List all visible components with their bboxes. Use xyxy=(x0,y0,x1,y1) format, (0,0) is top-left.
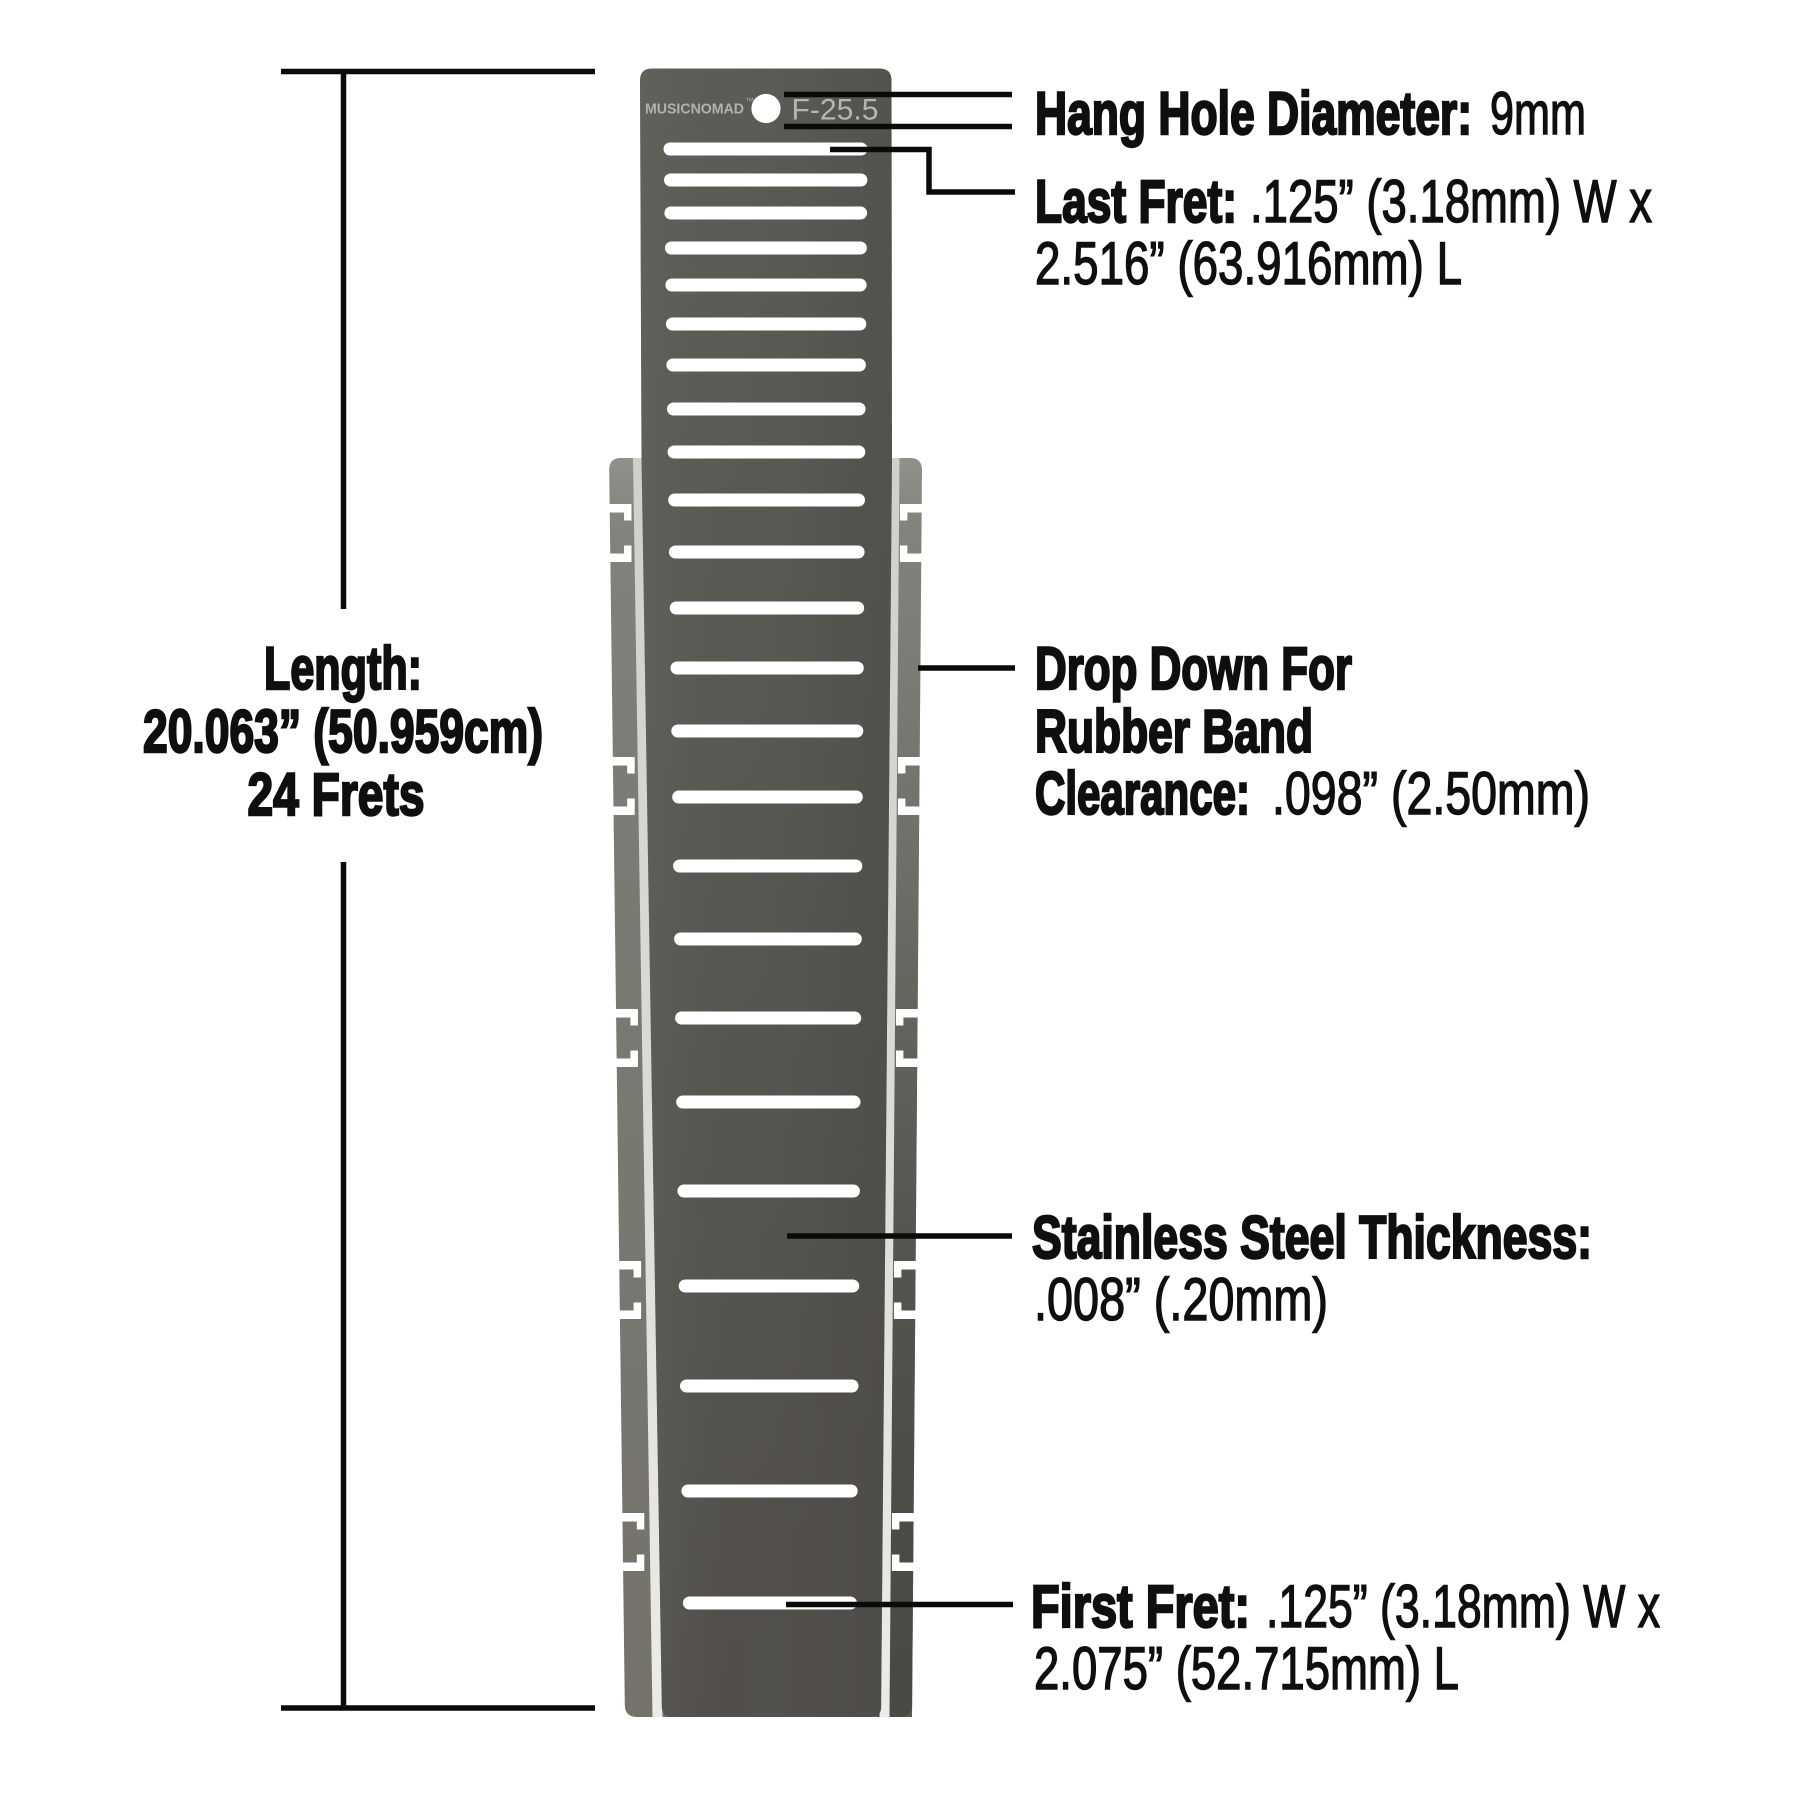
svg-text:First Fret:: First Fret: xyxy=(1031,1573,1250,1640)
svg-text:.008” (.20mm): .008” (.20mm) xyxy=(1034,1266,1328,1333)
svg-text:F-25.5: F-25.5 xyxy=(792,94,879,127)
svg-text:.098” (2.50mm): .098” (2.50mm) xyxy=(1272,760,1590,827)
svg-text:24 Frets: 24 Frets xyxy=(248,761,425,828)
svg-text:2.075” (52.715mm) L: 2.075” (52.715mm) L xyxy=(1034,1635,1459,1702)
svg-text:2.516” (63.916mm) L: 2.516” (63.916mm) L xyxy=(1035,230,1462,297)
svg-text:Last Fret:: Last Fret: xyxy=(1035,168,1237,235)
svg-text:.125” (3.18mm) W x: .125” (3.18mm) W x xyxy=(1266,1573,1660,1640)
svg-text:Stainless Steel Thickness:: Stainless Steel Thickness: xyxy=(1032,1204,1592,1271)
svg-text:Rubber Band: Rubber Band xyxy=(1035,698,1313,765)
svg-text:Clearance:: Clearance: xyxy=(1035,760,1250,827)
svg-text:Drop Down For: Drop Down For xyxy=(1035,635,1352,702)
svg-text:20.063” (50.959cm): 20.063” (50.959cm) xyxy=(143,698,543,765)
svg-text:Length:: Length: xyxy=(264,635,422,702)
svg-text:.125” (3.18mm) W x: .125” (3.18mm) W x xyxy=(1250,168,1652,235)
svg-text:MUSICNOMAD: MUSICNOMAD xyxy=(645,101,744,118)
svg-text:Hang Hole Diameter:: Hang Hole Diameter: xyxy=(1035,80,1472,147)
svg-text:™: ™ xyxy=(745,96,754,106)
svg-text:9mm: 9mm xyxy=(1490,80,1586,147)
